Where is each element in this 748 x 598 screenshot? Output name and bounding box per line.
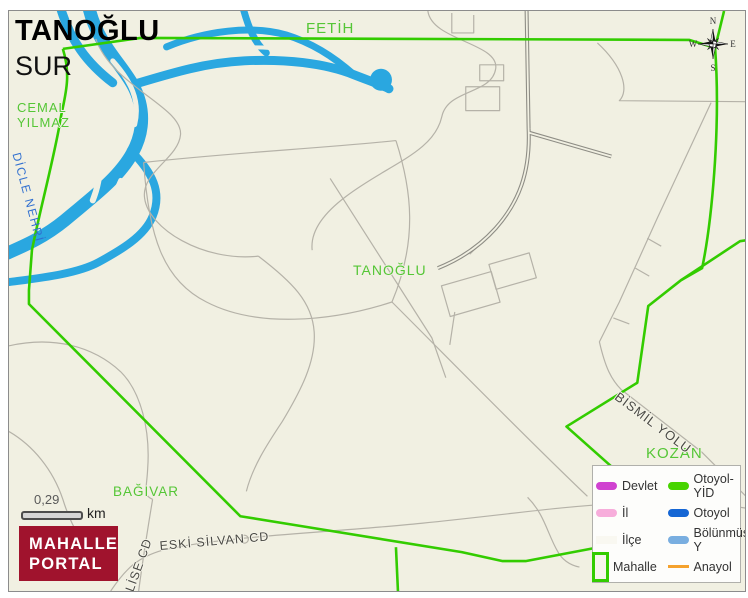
devlet-swatch-icon (596, 482, 617, 490)
page-subtitle: SUR (15, 51, 72, 82)
logo-line2: PORTAL (29, 554, 118, 574)
ilce-swatch-icon (596, 536, 617, 544)
legend-label: Devlet (622, 479, 657, 493)
mahalle-swatch-icon (592, 552, 609, 582)
legend-item-ilce: İlçe (595, 533, 667, 547)
label-cemal-line2: YILMAZ (17, 115, 70, 130)
compass-n: N (710, 16, 717, 26)
label-cemal-line1: CEMAL (17, 100, 70, 115)
compass-rose-icon: N E S W (689, 13, 737, 73)
legend-row: İl Otoyol (595, 499, 738, 526)
label-fetih: FETİH (306, 20, 354, 37)
legend-row: Devlet Otoyol-YİD (595, 472, 738, 499)
compass-s: S (710, 63, 715, 73)
legend-item-mahalle: Mahalle (595, 556, 667, 578)
scale-bar (21, 511, 83, 520)
mahalle-portal-logo: MAHALLE PORTAL (19, 526, 118, 581)
legend-label: İlçe (622, 533, 641, 547)
compass-w: W (689, 39, 698, 49)
legend-item-devlet: Devlet (595, 479, 667, 493)
legend-item-il: İl (595, 506, 667, 520)
il-swatch-icon (596, 509, 617, 517)
legend-label: İl (622, 506, 628, 520)
legend-label: Otoyol-YİD (694, 472, 739, 500)
label-cemal-yilmaz: CEMAL YILMAZ (17, 100, 70, 130)
legend-row: Mahalle Anayol (595, 553, 738, 580)
anayol-swatch-icon (668, 565, 689, 568)
bolunmus-swatch-icon (668, 536, 689, 544)
scale-value: 0,29 (34, 492, 59, 507)
legend-panel: Devlet Otoyol-YİD İl Otoyol (592, 465, 741, 583)
otoyol-swatch-icon (668, 509, 689, 517)
label-bagivar: BAĞIVAR (113, 484, 179, 499)
map-canvas[interactable]: TANOĞLU SUR FETİH CEMAL YILMAZ TANOĞLU K… (8, 10, 746, 592)
legend-label: Anayol (694, 560, 732, 574)
legend-item-anayol: Anayol (667, 560, 739, 574)
legend-label: Bölünmüş Y (694, 526, 747, 554)
legend-label: Otoyol (694, 506, 730, 520)
legend-item-otoyol: Otoyol (667, 506, 739, 520)
scale-unit: km (87, 505, 106, 521)
map-portal-window: TANOĞLU SUR FETİH CEMAL YILMAZ TANOĞLU K… (0, 0, 748, 598)
compass-e: E (730, 39, 736, 49)
railway-line (438, 11, 612, 268)
legend-item-bolunmus: Bölünmüş Y (667, 526, 739, 554)
legend-label: Mahalle (613, 560, 657, 574)
otoyol-yid-swatch-icon (668, 482, 689, 490)
legend-item-otoyol-yid: Otoyol-YİD (667, 472, 739, 500)
logo-line1: MAHALLE (29, 534, 118, 554)
page-title: TANOĞLU (15, 15, 160, 48)
label-tanoglu: TANOĞLU (353, 262, 427, 278)
legend-row: İlçe Bölünmüş Y (595, 526, 738, 553)
